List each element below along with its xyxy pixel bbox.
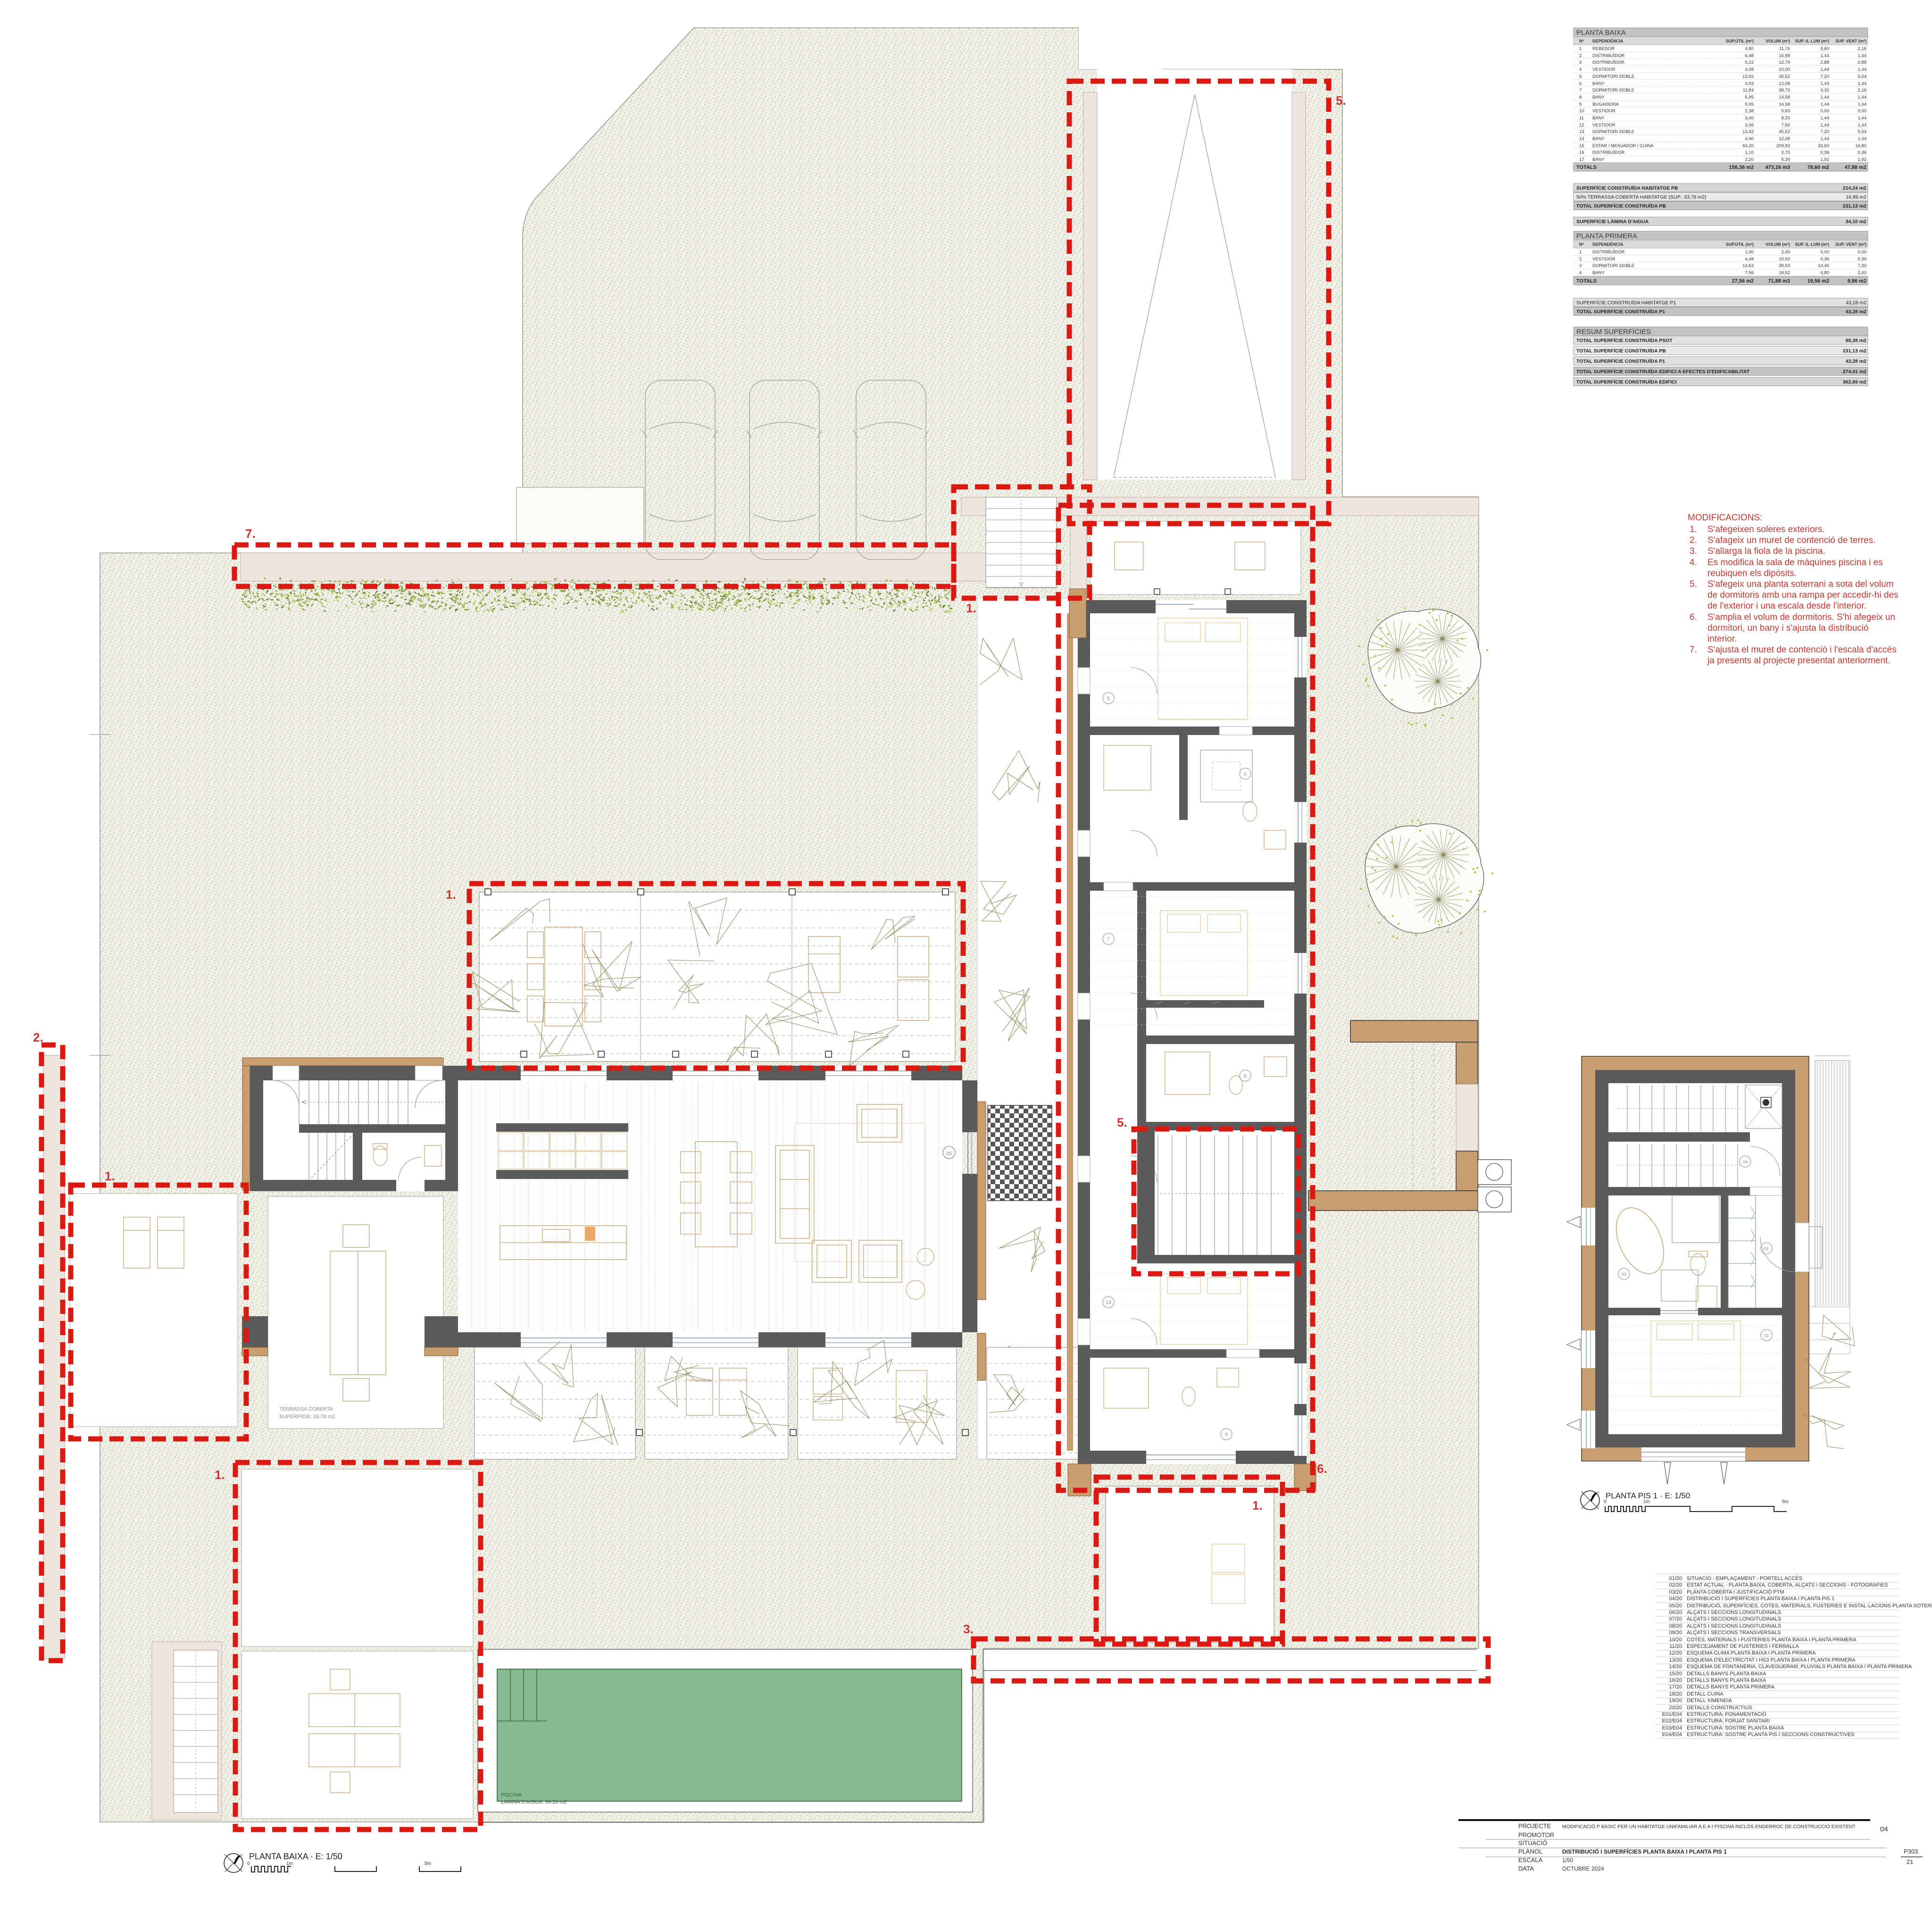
svg-text:1/50: 1/50 — [1562, 1857, 1574, 1863]
svg-text:20/20: 20/20 — [1669, 1705, 1682, 1711]
svg-text:3.: 3. — [1690, 546, 1697, 556]
svg-text:ESTAR / MENJADOR / CUINA: ESTAR / MENJADOR / CUINA — [1592, 143, 1654, 149]
svg-text:5,95: 5,95 — [1745, 102, 1754, 107]
svg-text:13: 13 — [1106, 1300, 1111, 1305]
svg-text:6: 6 — [1244, 772, 1247, 777]
svg-text:VESTIDOR: VESTIDOR — [1592, 257, 1616, 262]
svg-text:4,80: 4,80 — [1745, 46, 1754, 51]
svg-text:4,32: 4,32 — [1821, 88, 1830, 93]
svg-text:DORMITORI DOBLE: DORMITORI DOBLE — [1592, 129, 1634, 134]
svg-text:1,44: 1,44 — [1821, 67, 1830, 72]
svg-text:12,79: 12,79 — [1779, 60, 1790, 65]
svg-text:ALÇATS I SECCIONS LONGITUDINAL: ALÇATS I SECCIONS LONGITUDINALS — [1687, 1616, 1781, 1622]
svg-text:Nº: Nº — [1579, 39, 1584, 43]
svg-text:9,60: 9,60 — [1821, 46, 1830, 51]
svg-text:03: 03 — [1622, 1272, 1626, 1277]
svg-text:1m: 1m — [286, 1861, 293, 1866]
svg-text:2: 2 — [1579, 53, 1582, 58]
svg-text:5: 5 — [1107, 696, 1110, 702]
svg-text:1,44: 1,44 — [1821, 136, 1830, 142]
svg-text:3,40: 3,40 — [1745, 116, 1754, 121]
svg-text:1,44: 1,44 — [1858, 67, 1867, 72]
svg-text:ALÇATS I SECCIONS TRANSVERSALS: ALÇATS I SECCIONS TRANSVERSALS — [1687, 1630, 1781, 1636]
svg-text:2,16: 2,16 — [1858, 88, 1867, 93]
svg-text:1,44: 1,44 — [1821, 102, 1830, 107]
svg-text:15: 15 — [1579, 143, 1584, 149]
svg-text:7,20: 7,20 — [1858, 263, 1867, 268]
svg-text:39,93: 39,93 — [1779, 263, 1790, 268]
svg-text:ALÇATS I SECCIONS LONGITUDINAL: ALÇATS I SECCIONS LONGITUDINALS — [1687, 1610, 1781, 1615]
svg-text:1,44: 1,44 — [1858, 53, 1867, 58]
svg-text:47,88 m2: 47,88 m2 — [1845, 165, 1866, 170]
svg-text:0,00: 0,00 — [1821, 250, 1830, 255]
svg-text:SUP. IL·LUM (m²): SUP. IL·LUM (m²) — [1795, 242, 1829, 247]
svg-text:ja presents al projecte presen: ja presents al projecte presentat anteri… — [1707, 656, 1890, 666]
svg-text:LAMINA D'AIGUA: 34.10 m2: LAMINA D'AIGUA: 34.10 m2 — [501, 1799, 567, 1805]
svg-text:de dormitoris amb una rampa pe: de dormitoris amb una rampa per accedir-… — [1707, 590, 1898, 600]
svg-text:2.: 2. — [1690, 535, 1697, 545]
svg-text:1.: 1. — [1690, 525, 1697, 535]
svg-text:1: 1 — [1579, 250, 1582, 255]
svg-text:18/20: 18/20 — [1669, 1691, 1682, 1697]
svg-text:1,10: 1,10 — [1745, 150, 1754, 155]
svg-text:DORMITORI DOBLE: DORMITORI DOBLE — [1592, 88, 1634, 93]
svg-text:VESTIDOR: VESTIDOR — [1592, 123, 1616, 128]
svg-text:P303: P303 — [1904, 1848, 1918, 1855]
svg-text:VOLUM (m³): VOLUM (m³) — [1765, 39, 1790, 43]
svg-text:1.: 1. — [1252, 1498, 1263, 1512]
svg-text:SUPERFÍCIE CONSTRUÏDA HABITATG: SUPERFÍCIE CONSTRUÏDA HABITATGE P1 — [1576, 300, 1676, 306]
svg-text:PROMOTOR: PROMOTOR — [1518, 1831, 1554, 1838]
svg-text:2,38: 2,38 — [1745, 109, 1754, 114]
svg-text:5,22: 5,22 — [1745, 60, 1754, 65]
svg-text:BANY: BANY — [1592, 270, 1605, 276]
svg-text:11,76: 11,76 — [1779, 46, 1790, 51]
svg-text:12: 12 — [1579, 123, 1584, 128]
svg-text:MODIFICACIÓ P BÀSIC PER UN HAB: MODIFICACIÓ P BÀSIC PER UN HABITATGE UNI… — [1562, 1823, 1856, 1830]
svg-text:3.: 3. — [963, 1622, 974, 1636]
svg-text:9,96 m2: 9,96 m2 — [1848, 278, 1866, 284]
svg-text:DETALLS BANYS PLANTA PRIMERA: DETALLS BANYS PLANTA PRIMERA — [1687, 1684, 1775, 1690]
svg-text:01/20: 01/20 — [1669, 1576, 1682, 1581]
svg-text:45,52: 45,52 — [1779, 129, 1790, 134]
svg-text:TOTAL SUPERFÍCIE CONSTRUÏDA ED: TOTAL SUPERFÍCIE CONSTRUÏDA EDIFICI A EF… — [1576, 368, 1750, 375]
svg-text:4,08: 4,08 — [1745, 67, 1754, 72]
svg-text:274,41 m2: 274,41 m2 — [1843, 369, 1866, 375]
svg-text:SUPERFÍCIE LÀMINA D'AIGUA: SUPERFÍCIE LÀMINA D'AIGUA — [1576, 218, 1649, 225]
svg-text:1m: 1m — [1643, 1499, 1650, 1504]
svg-text:5,95: 5,95 — [1745, 95, 1754, 100]
svg-text:231,13 m2: 231,13 m2 — [1843, 348, 1866, 354]
svg-text:18,52: 18,52 — [1779, 270, 1790, 276]
svg-text:6.: 6. — [1317, 1462, 1327, 1476]
svg-text:Nº: Nº — [1579, 242, 1584, 247]
svg-text:11,84: 11,84 — [1743, 88, 1754, 93]
svg-text:DISTRIBUCIÓ, SUPERFÍCIES, COTE: DISTRIBUCIÓ, SUPERFÍCIES, COTES, MATERIA… — [1687, 1603, 1932, 1609]
svg-text:DORMITORI DOBLE: DORMITORI DOBLE — [1592, 263, 1634, 268]
svg-text:5.: 5. — [1336, 93, 1346, 108]
svg-text:7,20: 7,20 — [1821, 129, 1830, 134]
svg-text:DISTRIBUÏDOR: DISTRIBUÏDOR — [1592, 60, 1624, 65]
svg-text:0,00: 0,00 — [1858, 250, 1867, 255]
svg-text:BANY: BANY — [1592, 116, 1605, 121]
svg-text:4,90: 4,90 — [1745, 136, 1754, 142]
svg-text:DETALL XIMENEIA: DETALL XIMENEIA — [1687, 1698, 1732, 1704]
svg-text:11/20: 11/20 — [1669, 1644, 1682, 1649]
svg-text:1.: 1. — [105, 1169, 115, 1183]
svg-text:TOTALS: TOTALS — [1576, 165, 1597, 170]
svg-text:S'allarga la fiola de la pisci: S'allarga la fiola de la piscina. — [1707, 546, 1825, 556]
svg-text:1,44: 1,44 — [1858, 116, 1867, 121]
svg-text:VESTIDOR: VESTIDOR — [1592, 109, 1616, 114]
svg-text:14: 14 — [1579, 136, 1584, 142]
svg-text:DISTRIBUÏDOR: DISTRIBUÏDOR — [1592, 53, 1624, 58]
svg-text:5,04: 5,04 — [1858, 129, 1867, 134]
svg-text:DETALLS BANYS PLANTA BAIXA: DETALLS BANYS PLANTA BAIXA — [1687, 1671, 1766, 1677]
svg-text:19/20: 19/20 — [1669, 1698, 1682, 1704]
svg-text:DEPENDÈNCIA: DEPENDÈNCIA — [1592, 39, 1624, 43]
svg-text:SUP.ÚTIL (m²): SUP.ÚTIL (m²) — [1726, 242, 1754, 247]
svg-text:8: 8 — [1579, 95, 1582, 100]
svg-text:09/20: 09/20 — [1669, 1630, 1682, 1636]
svg-text:SUP. VENT (m²): SUP. VENT (m²) — [1835, 39, 1866, 43]
svg-text:VESTIDOR: VESTIDOR — [1592, 67, 1616, 72]
svg-text:12/20: 12/20 — [1669, 1650, 1682, 1656]
svg-text:PROJECTE: PROJECTE — [1518, 1822, 1551, 1830]
svg-text:10,00: 10,00 — [1779, 67, 1790, 72]
svg-text:PISCINA: PISCINA — [501, 1792, 522, 1798]
svg-text:OCTUBRE 2024: OCTUBRE 2024 — [1562, 1865, 1604, 1872]
svg-text:1: 1 — [1579, 46, 1582, 51]
svg-text:45,52: 45,52 — [1779, 74, 1790, 79]
svg-text:50% TERRASSA COBERTA HABITATGE: 50% TERRASSA COBERTA HABITATGE (SUP.: 33… — [1576, 194, 1706, 200]
svg-text:04: 04 — [1880, 1825, 1888, 1833]
svg-text:S'afageix un muret de contenci: S'afageix un muret de contenció de terre… — [1707, 535, 1875, 545]
svg-text:BANY: BANY — [1592, 157, 1605, 162]
svg-text:33,60: 33,60 — [1818, 143, 1829, 149]
svg-text:78,60 m2: 78,60 m2 — [1807, 165, 1829, 170]
svg-text:DISTRIBUÏDOR: DISTRIBUÏDOR — [1592, 250, 1624, 255]
svg-text:ESTRUCTURA: FORJAT SANITARI: ESTRUCTURA: FORJAT SANITARI — [1687, 1718, 1770, 1724]
svg-text:14,40: 14,40 — [1818, 263, 1829, 268]
svg-text:2,20: 2,20 — [1745, 157, 1754, 162]
svg-text:12,08: 12,08 — [1779, 81, 1790, 86]
svg-text:PLÀNOL: PLÀNOL — [1518, 1848, 1542, 1855]
svg-text:9: 9 — [1579, 102, 1582, 107]
svg-text:5: 5 — [1579, 74, 1582, 79]
svg-text:PLANTA BAIXA · E: 1/50: PLANTA BAIXA · E: 1/50 — [249, 1852, 342, 1861]
svg-text:71,88 m3: 71,88 m3 — [1768, 278, 1790, 284]
svg-text:reubiquen els dipòsits.: reubiquen els dipòsits. — [1707, 568, 1797, 578]
svg-text:06/20: 06/20 — [1669, 1610, 1682, 1615]
svg-text:DORMITORI DOBLE: DORMITORI DOBLE — [1592, 74, 1634, 79]
svg-text:0,36: 0,36 — [1821, 257, 1830, 262]
svg-text:DETALL CUINA: DETALL CUINA — [1687, 1691, 1724, 1697]
svg-text:de l'exterior i una escala des: de l'exterior i una escala desde l'inter… — [1707, 601, 1866, 611]
svg-text:PLANTA PRIMERA: PLANTA PRIMERA — [1576, 232, 1637, 240]
svg-text:43,28 m2: 43,28 m2 — [1846, 359, 1867, 364]
svg-text:TOTAL SUPERFÍCIE CONSTRUÏDA PB: TOTAL SUPERFÍCIE CONSTRUÏDA PB — [1576, 203, 1666, 209]
svg-text:16,80: 16,80 — [1855, 143, 1866, 149]
svg-text:4: 4 — [1579, 67, 1582, 72]
svg-text:1.: 1. — [966, 601, 976, 615]
svg-text:8,33: 8,33 — [1782, 116, 1790, 121]
svg-text:16/20: 16/20 — [1669, 1678, 1682, 1683]
svg-text:6.: 6. — [1690, 612, 1697, 622]
svg-text:231,13 m2: 231,13 m2 — [1843, 203, 1866, 209]
svg-text:03/20: 03/20 — [1669, 1589, 1682, 1595]
svg-text:Es modifica la sala de màquine: Es modifica la sala de màquines piscina … — [1707, 558, 1883, 568]
svg-text:08/20: 08/20 — [1669, 1623, 1682, 1629]
svg-text:ESQUEMA D'ELECTRICITAT I HS3 P: ESQUEMA D'ELECTRICITAT I HS3 PLANTA BAIX… — [1687, 1657, 1856, 1663]
svg-text:7,20: 7,20 — [1821, 74, 1830, 79]
svg-text:11: 11 — [1579, 116, 1584, 121]
svg-text:17: 17 — [1579, 157, 1584, 162]
svg-text:S'afegeixen soleres exteriors.: S'afegeixen soleres exteriors. — [1707, 525, 1825, 535]
svg-text:0,36: 0,36 — [1858, 257, 1867, 262]
svg-text:16,89 m2: 16,89 m2 — [1846, 194, 1866, 200]
svg-text:209,93: 209,93 — [1776, 143, 1790, 149]
svg-text:1,44: 1,44 — [1858, 81, 1867, 86]
svg-text:0,00: 0,00 — [1858, 109, 1867, 114]
svg-text:BANY: BANY — [1592, 95, 1605, 100]
svg-text:RESUM SUPERFÍCIES: RESUM SUPERFÍCIES — [1576, 328, 1651, 336]
svg-text:5m: 5m — [425, 1861, 431, 1866]
svg-text:64,20: 64,20 — [1742, 143, 1754, 149]
svg-text:ALÇATS I SECCIONS LONGITUDINAL: ALÇATS I SECCIONS LONGITUDINALS — [1687, 1623, 1781, 1629]
svg-text:0: 0 — [1604, 1499, 1607, 1504]
svg-text:01: 01 — [1764, 1246, 1769, 1251]
svg-text:1,92: 1,92 — [1821, 157, 1830, 162]
svg-text:TOTAL SUPERFÍCIE CONSTRUÏDA PS: TOTAL SUPERFÍCIE CONSTRUÏDA PSOT — [1576, 337, 1673, 343]
svg-text:ESTRUCTURA: SOSTRE PLANTA BAIX: ESTRUCTURA: SOSTRE PLANTA BAIXA — [1687, 1725, 1784, 1731]
svg-text:1.: 1. — [446, 887, 456, 902]
svg-text:10: 10 — [1579, 109, 1584, 114]
svg-text:2,70: 2,70 — [1782, 150, 1790, 155]
svg-text:2: 2 — [1579, 257, 1582, 262]
svg-text:12,08: 12,08 — [1779, 136, 1790, 142]
svg-text:7.: 7. — [245, 526, 256, 541]
svg-text:2,88: 2,88 — [1858, 60, 1867, 65]
svg-text:S'ajusta el muret de contenció: S'ajusta el muret de contenció i l'escal… — [1707, 645, 1897, 655]
svg-text:TOTALS: TOTALS — [1576, 278, 1597, 284]
svg-text:17/20: 17/20 — [1669, 1684, 1682, 1690]
svg-text:TOTAL SUPERFÍCIE CONSTRUÏDA P1: TOTAL SUPERFÍCIE CONSTRUÏDA P1 — [1576, 358, 1665, 364]
svg-text:8: 8 — [1244, 1074, 1247, 1079]
svg-text:7: 7 — [1107, 937, 1110, 942]
svg-text:DETALLS CONSTRUCTIUS: DETALLS CONSTRUCTIUS — [1687, 1705, 1752, 1711]
svg-text:04/20: 04/20 — [1669, 1596, 1682, 1602]
svg-text:7: 7 — [1579, 88, 1582, 93]
svg-text:0: 0 — [247, 1861, 250, 1866]
svg-text:1,44: 1,44 — [1821, 116, 1830, 121]
svg-text:PLANTA COBERTA I JUSTIFICACIÓ: PLANTA COBERTA I JUSTIFICACIÓ PTM — [1687, 1589, 1784, 1595]
svg-text:4,93: 4,93 — [1745, 81, 1754, 86]
svg-text:4,80: 4,80 — [1821, 270, 1830, 276]
svg-text:1,44: 1,44 — [1858, 123, 1867, 128]
svg-text:10/20: 10/20 — [1669, 1637, 1682, 1643]
svg-text:2.: 2. — [33, 1030, 43, 1044]
svg-text:SITUACIÓ - EMPLAÇAMENT - PORTE: SITUACIÓ - EMPLAÇAMENT - PORTELL ACCÉS — [1687, 1575, 1802, 1581]
svg-text:1,44: 1,44 — [1858, 102, 1867, 107]
svg-text:13,92: 13,92 — [1742, 74, 1754, 79]
svg-text:21: 21 — [1907, 1858, 1913, 1865]
svg-text:10,93: 10,93 — [1779, 257, 1790, 262]
svg-text:14,58: 14,58 — [1779, 95, 1790, 100]
svg-text:ESQUEMA DE FONTANERIA, CLAVEGU: ESQUEMA DE FONTANERIA, CLAVEGUERAM, PLUV… — [1687, 1664, 1912, 1670]
svg-text:5.: 5. — [1690, 579, 1697, 589]
svg-text:4.: 4. — [1690, 558, 1697, 568]
svg-text:TOTAL SUPERFÍCIE CONSTRUÏDA PB: TOTAL SUPERFÍCIE CONSTRUÏDA PB — [1576, 348, 1666, 354]
svg-text:4: 4 — [1579, 270, 1582, 276]
svg-text:7,50: 7,50 — [1782, 123, 1790, 128]
svg-text:43,28 m2: 43,28 m2 — [1846, 309, 1867, 315]
svg-text:5,04: 5,04 — [1858, 74, 1867, 79]
svg-text:DETALLS BANYS PLANTA BAIXA: DETALLS BANYS PLANTA BAIXA — [1687, 1678, 1766, 1683]
svg-text:SUP. IL·LUM (m²): SUP. IL·LUM (m²) — [1795, 39, 1829, 43]
svg-text:15: 15 — [946, 1151, 952, 1156]
svg-text:0,36: 0,36 — [1821, 150, 1830, 155]
svg-text:158,36 m2: 158,36 m2 — [1729, 165, 1754, 170]
svg-text:14,52: 14,52 — [1742, 263, 1754, 268]
svg-text:1,44: 1,44 — [1821, 123, 1830, 128]
svg-text:1.: 1. — [215, 1468, 225, 1482]
svg-text:02: 02 — [1764, 1333, 1769, 1338]
svg-text:ESTRUCTURA: SOSTRE PLANTA PIS: ESTRUCTURA: SOSTRE PLANTA PIS I SECCIONS… — [1687, 1732, 1855, 1738]
svg-text:ESTRUCTURA: FONAMENTACIÓ: ESTRUCTURA: FONAMENTACIÓ — [1687, 1711, 1767, 1717]
svg-text:E01/E04: E01/E04 — [1662, 1712, 1682, 1717]
svg-text:7.: 7. — [1690, 645, 1697, 655]
svg-text:E03/E04: E03/E04 — [1662, 1725, 1682, 1731]
svg-text:E02/E04: E02/E04 — [1662, 1718, 1682, 1724]
svg-text:S'afegeix una planta soterrani: S'afegeix una planta soterrani a sota de… — [1707, 579, 1893, 589]
svg-text:5.: 5. — [1117, 1115, 1127, 1129]
svg-text:214,24 m2: 214,24 m2 — [1843, 185, 1866, 191]
svg-text:3: 3 — [1579, 60, 1582, 65]
svg-text:473,16 m3: 473,16 m3 — [1765, 165, 1790, 170]
svg-text:13/20: 13/20 — [1669, 1657, 1682, 1663]
svg-text:14,58: 14,58 — [1779, 102, 1790, 107]
svg-text:9: 9 — [1225, 1432, 1228, 1437]
svg-text:362,69 m2: 362,69 m2 — [1843, 379, 1866, 385]
svg-text:DISTRIBUCIÓ I SUPERFÍCIES PLAN: DISTRIBUCIÓ I SUPERFÍCIES PLANTA BAIXA I… — [1562, 1848, 1727, 1855]
svg-text:ESTAT ACTUAL - PLANTA BAIXA, C: ESTAT ACTUAL - PLANTA BAIXA, COBERTA, AL… — [1687, 1582, 1888, 1588]
svg-text:3,06: 3,06 — [1745, 123, 1754, 128]
svg-text:7,56: 7,56 — [1745, 270, 1754, 276]
svg-text:0,36: 0,36 — [1858, 150, 1867, 155]
svg-text:1,92: 1,92 — [1858, 157, 1867, 162]
svg-text:02/20: 02/20 — [1669, 1582, 1682, 1588]
svg-text:SITUACIÓ: SITUACIÓ — [1518, 1839, 1547, 1847]
svg-text:13,92: 13,92 — [1742, 129, 1754, 134]
svg-text:dormitori, un bany i s'ajusta: dormitori, un bany i s'ajusta la distrib… — [1707, 623, 1869, 633]
svg-text:PLANTA BAIXA: PLANTA BAIXA — [1576, 29, 1626, 37]
svg-text:BANY: BANY — [1592, 136, 1605, 142]
svg-text:16: 16 — [1579, 150, 1584, 155]
svg-text:VOLUM (m³): VOLUM (m³) — [1765, 242, 1790, 247]
svg-text:6: 6 — [1579, 81, 1582, 86]
svg-text:SUPERFÍCIE CONSTRUÏDA HABITATG: SUPERFÍCIE CONSTRUÏDA HABITATGE PB — [1576, 185, 1678, 191]
svg-text:DISTRIBUCIÓ I SUPERFÍCIES PLAN: DISTRIBUCIÓ I SUPERFÍCIES PLANTA BAIXA I… — [1687, 1596, 1834, 1602]
svg-text:ESCALA: ESCALA — [1518, 1856, 1543, 1863]
svg-text:27,56 m2: 27,56 m2 — [1732, 278, 1754, 284]
svg-text:13: 13 — [1579, 129, 1584, 134]
svg-text:19,56 m2: 19,56 m2 — [1807, 278, 1829, 284]
svg-text:SUP.ÚTIL (m²): SUP.ÚTIL (m²) — [1726, 38, 1754, 43]
svg-text:ESQUEMA CLIMA PLANTA BAIXA I P: ESQUEMA CLIMA PLANTA BAIXA I PLANTA PRIM… — [1687, 1650, 1816, 1656]
svg-text:1,44: 1,44 — [1821, 53, 1830, 58]
svg-text:04: 04 — [1743, 1160, 1748, 1164]
svg-text:S'amplia el volum de dormitori: S'amplia el volum de dormitoris. S'hi af… — [1707, 612, 1895, 622]
svg-text:DATA: DATA — [1518, 1865, 1534, 1872]
svg-text:5m: 5m — [1782, 1499, 1789, 1504]
svg-text:5,83: 5,83 — [1782, 109, 1790, 114]
svg-text:BANY: BANY — [1592, 81, 1605, 86]
svg-text:DISTRIBUÏDOR: DISTRIBUÏDOR — [1592, 150, 1624, 155]
svg-text:DEPENDÈNCIA: DEPENDÈNCIA — [1592, 242, 1624, 247]
svg-text:REBEDOR: REBEDOR — [1592, 46, 1615, 51]
svg-text:38,72: 38,72 — [1779, 88, 1790, 93]
svg-text:TOTAL SUPERFÍCIE CONSTRUÏDA P1: TOTAL SUPERFÍCIE CONSTRUÏDA P1 — [1576, 309, 1665, 315]
svg-text:2,88: 2,88 — [1821, 60, 1830, 65]
svg-text:BUGADERIA: BUGADERIA — [1592, 102, 1619, 107]
svg-text:2,45: 2,45 — [1782, 250, 1790, 255]
svg-text:interior.: interior. — [1707, 634, 1737, 644]
svg-text:2,40: 2,40 — [1858, 270, 1867, 276]
svg-text:2,16: 2,16 — [1858, 46, 1867, 51]
svg-text:07/20: 07/20 — [1669, 1616, 1682, 1622]
svg-text:1,44: 1,44 — [1858, 95, 1867, 100]
svg-text:1,44: 1,44 — [1821, 95, 1830, 100]
svg-text:14/20: 14/20 — [1669, 1664, 1682, 1670]
svg-text:ESPECEJAMENT DE FUSTERIES I FE: ESPECEJAMENT DE FUSTERIES I FERRALLA — [1687, 1644, 1799, 1649]
svg-text:COTES, MATERIALS I FUSTERIES P: COTES, MATERIALS I FUSTERIES PLANTA BAIX… — [1687, 1637, 1857, 1643]
svg-text:5,39: 5,39 — [1782, 157, 1790, 162]
svg-text:0,00: 0,00 — [1821, 109, 1830, 114]
svg-text:3: 3 — [1579, 263, 1582, 268]
svg-text:05/20: 05/20 — [1669, 1603, 1682, 1609]
svg-text:15/20: 15/20 — [1669, 1671, 1682, 1677]
svg-text:1,00: 1,00 — [1745, 250, 1754, 255]
svg-text:MODIFICACIONS:: MODIFICACIONS: — [1688, 513, 1762, 523]
svg-text:43,28 m2: 43,28 m2 — [1846, 300, 1866, 306]
svg-text:6,48: 6,48 — [1745, 53, 1754, 58]
svg-text:E04/E04: E04/E04 — [1662, 1732, 1682, 1738]
svg-text:TERRASSA COBERTA: TERRASSA COBERTA — [279, 1406, 333, 1412]
svg-text:SUP. VENT (m²): SUP. VENT (m²) — [1835, 242, 1866, 247]
svg-text:1,44: 1,44 — [1858, 136, 1867, 142]
svg-text:15,88: 15,88 — [1779, 53, 1790, 58]
svg-text:34,10 m2: 34,10 m2 — [1846, 219, 1867, 225]
svg-text:TOTAL SUPERFÍCIE CONSTRUÏDA ED: TOTAL SUPERFÍCIE CONSTRUÏDA EDIFICI — [1576, 379, 1677, 385]
svg-text:88,28 m2: 88,28 m2 — [1846, 338, 1867, 343]
svg-text:1,44: 1,44 — [1821, 81, 1830, 86]
svg-text:SUPERFICIE: 33.78 m2: SUPERFICIE: 33.78 m2 — [279, 1414, 335, 1420]
svg-text:4,48: 4,48 — [1745, 257, 1754, 262]
